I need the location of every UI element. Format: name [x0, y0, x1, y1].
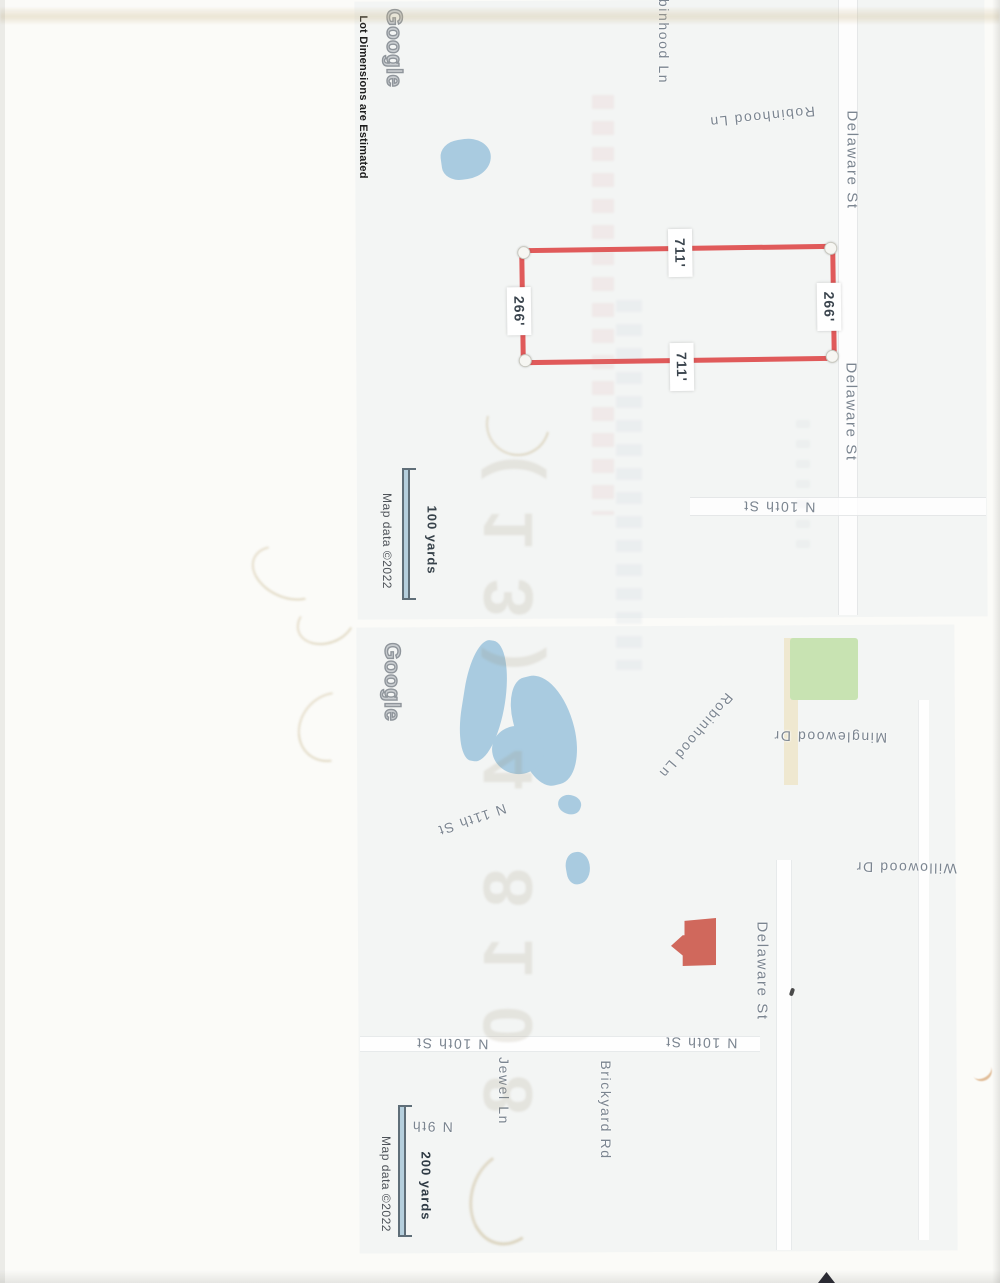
street-label-willowood-dr: Willowood Dr	[855, 859, 957, 877]
lot-corner-marker	[826, 350, 839, 363]
page-edge-shadow	[0, 1270, 1000, 1283]
ink-bleed-strip	[616, 300, 642, 670]
lot-boundary: 711' 711' 266' 266'	[519, 244, 837, 365]
dimension-value: 711'	[672, 238, 688, 268]
bleed-through-text-artifact: (13) 4 8108	[468, 456, 548, 1144]
dimension-label-left: 266'	[507, 287, 532, 335]
lot-corner-marker	[517, 246, 530, 259]
page-edge-shadow	[992, 0, 1000, 1283]
dimension-label-top: 711'	[668, 229, 693, 277]
street-label-delaware-st-south: Delaware St	[843, 362, 860, 461]
lot-corner-marker	[824, 242, 837, 255]
scale-label: 200 yards	[419, 1152, 434, 1221]
street-label-n-10th-st-east: N 10th St	[664, 1034, 737, 1051]
scan-mark-artifact	[818, 1272, 835, 1283]
page-edge-shadow	[0, 0, 5, 1283]
street-label-delaware-st-north: Delaware St	[844, 110, 861, 209]
scale-bar	[398, 1105, 406, 1237]
lot-corner-marker	[519, 354, 532, 367]
dimension-value: 266'	[821, 291, 837, 322]
scan-mark-artifact	[969, 1058, 996, 1084]
street-label-delaware-st: Delaware St	[754, 921, 771, 1020]
dimension-value: 266'	[511, 296, 527, 327]
street-label-minglewood-dr: Minglewood Dr	[773, 728, 887, 746]
google-logo-watermark: Google	[381, 9, 407, 88]
street-label-robinhood-ln-top: Robinhood Ln	[656, 0, 672, 84]
dimension-value: 711'	[674, 352, 690, 382]
park-area	[790, 638, 858, 700]
dimension-label-right: 266'	[817, 283, 842, 331]
scale-label: 100 yards	[425, 506, 440, 575]
lot-disclaimer-text: Lot Dimensions are Estimated	[357, 15, 369, 178]
map-attribution: Map data ©2022	[379, 1136, 393, 1232]
scale-bar	[402, 468, 410, 600]
show-through-mark	[243, 535, 331, 612]
ink-bleed-strip	[796, 420, 810, 550]
map-attribution: Map data ©2022	[380, 493, 394, 589]
scanned-lot-map-page: { "disclaimer": "Lot Dimensions are Esti…	[0, 0, 1000, 1283]
street-label-n-9th: N 9th	[411, 1119, 453, 1136]
ink-bleed-strip	[592, 95, 614, 515]
dimension-label-bottom: 711'	[670, 343, 695, 391]
street-label-brickyard-rd: Brickyard Rd	[598, 1060, 614, 1159]
map-screenshot-area	[356, 624, 957, 1253]
google-logo-watermark: Google	[379, 643, 405, 722]
